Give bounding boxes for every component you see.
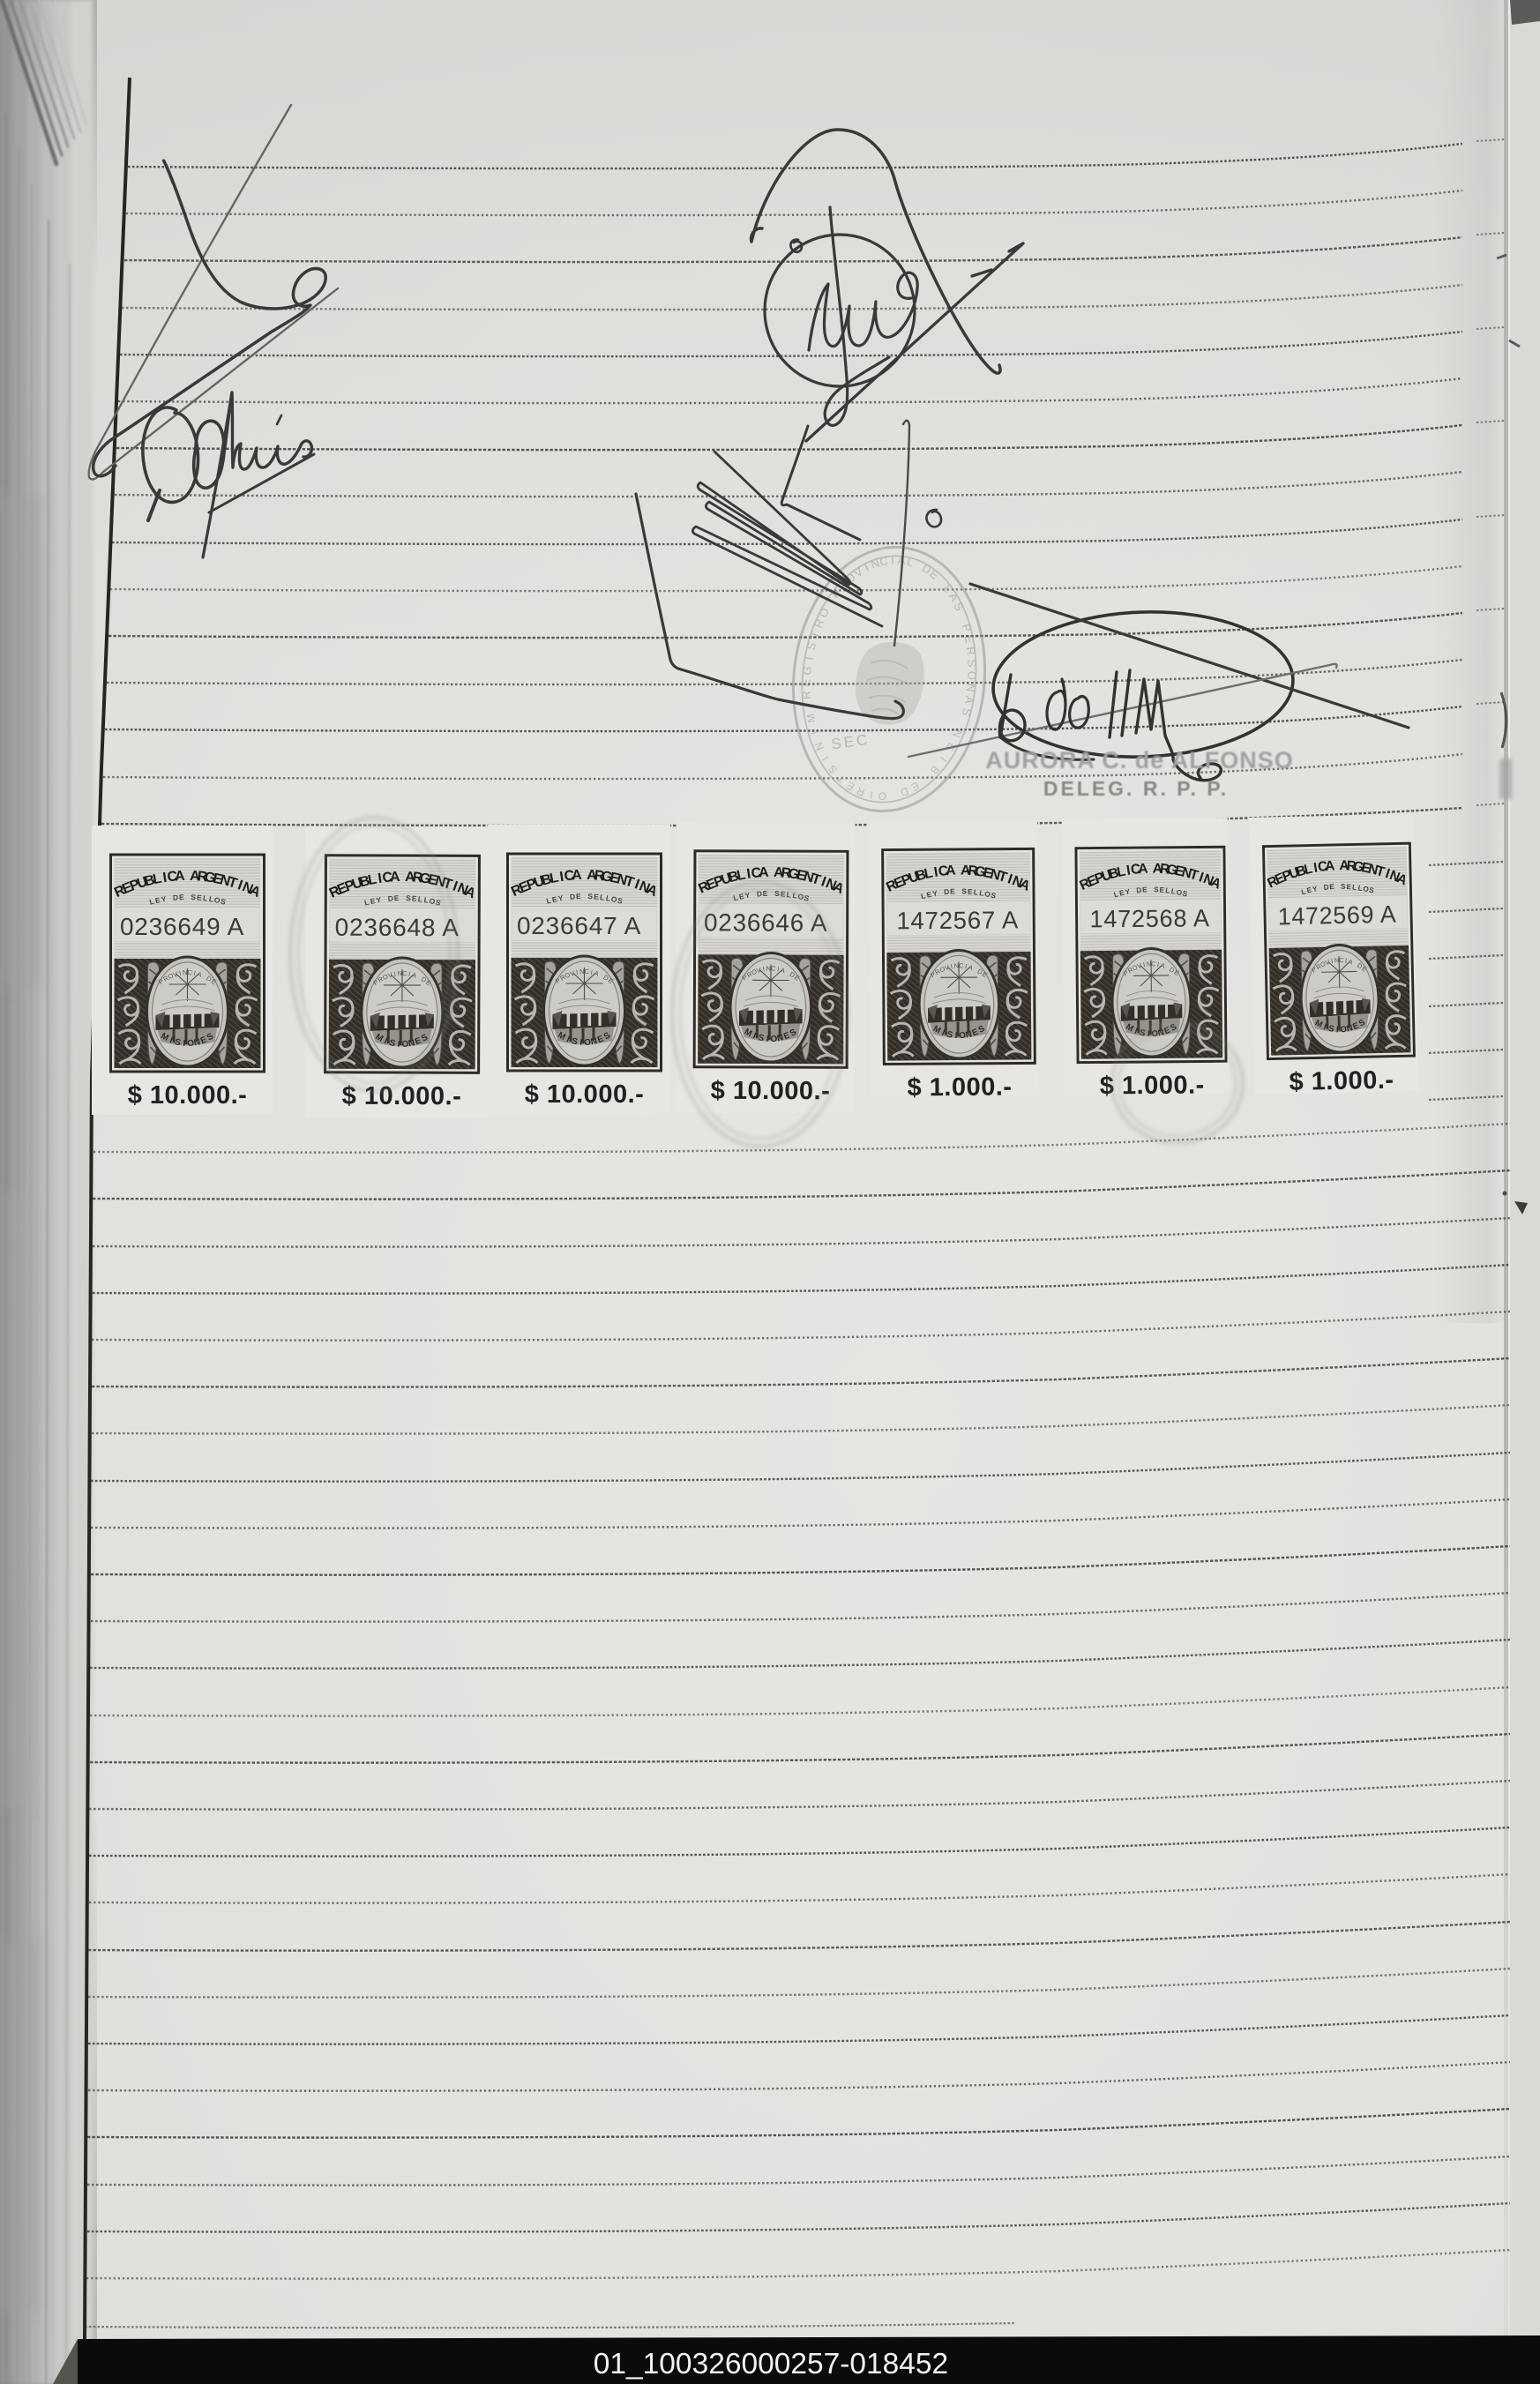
svg-text:AURORA C. de ALFONSO: AURORA C. de ALFONSO <box>985 747 1294 773</box>
svg-text:$ 10.000.-: $ 10.000.- <box>525 1080 645 1109</box>
svg-text:DELEG. R. P. P.: DELEG. R. P. P. <box>1043 777 1229 800</box>
svg-text:O: O <box>878 790 886 803</box>
svg-text:R: R <box>964 646 978 656</box>
svg-text:01_100326000257-018452: 01_100326000257-018452 <box>594 2348 948 2380</box>
svg-text:I: I <box>891 553 894 566</box>
svg-text:$ 10.000.-: $ 10.000.- <box>711 1077 831 1105</box>
svg-text:1472568 A: 1472568 A <box>1089 904 1209 933</box>
svg-text:0236647 A: 0236647 A <box>517 912 641 939</box>
svg-text:S: S <box>965 659 978 668</box>
svg-text:$ 10.000.-: $ 10.000.- <box>128 1081 248 1110</box>
svg-text:G: G <box>800 665 814 676</box>
svg-text:R: R <box>799 691 812 699</box>
svg-text:E: E <box>799 678 812 686</box>
svg-text:1472567 A: 1472567 A <box>896 906 1019 934</box>
svg-text:$ 1.000.-: $ 1.000.- <box>1289 1066 1394 1096</box>
svg-text:1472569 A: 1472569 A <box>1278 900 1397 930</box>
svg-text:$ 10.000.-: $ 10.000.- <box>342 1082 462 1110</box>
svg-text:N: N <box>964 683 978 692</box>
svg-text:$ 1.000.-: $ 1.000.- <box>1100 1071 1205 1100</box>
svg-text:$ 1.000.-: $ 1.000.- <box>907 1073 1012 1102</box>
svg-text:0236646 A: 0236646 A <box>704 908 827 937</box>
svg-text:0236649 A: 0236649 A <box>120 913 244 940</box>
svg-text:0236648 A: 0236648 A <box>335 914 460 941</box>
svg-text:O: O <box>965 670 978 680</box>
